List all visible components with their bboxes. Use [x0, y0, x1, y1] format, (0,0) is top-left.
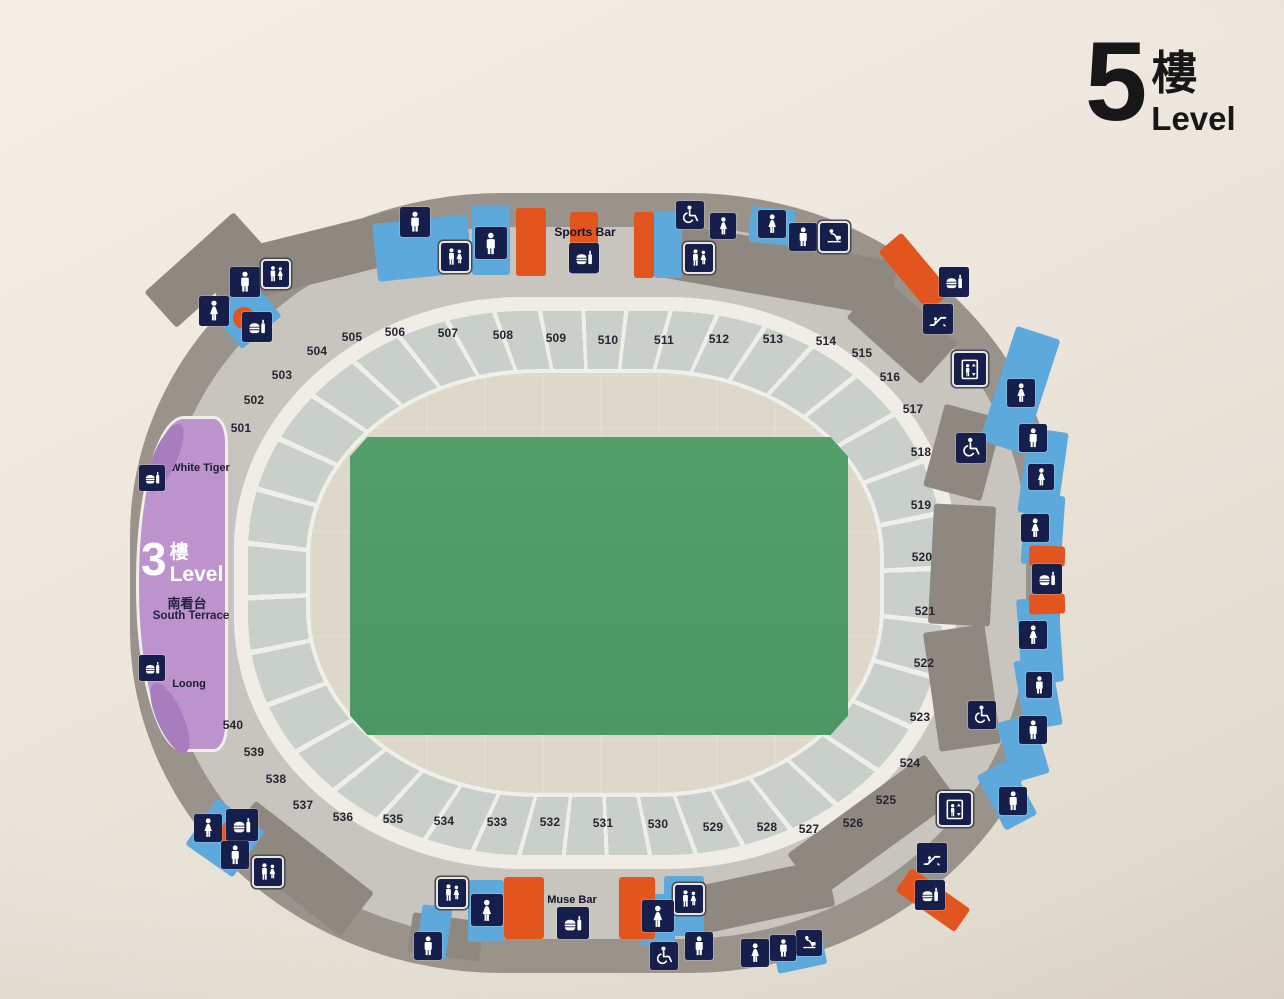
- wheelchair-access-icon: [956, 433, 986, 463]
- terrace-level-number: 3: [141, 539, 167, 585]
- orange-zone-patch: [504, 877, 544, 939]
- mens-restroom-icon: [685, 932, 713, 960]
- food-drink-icon: [557, 907, 589, 939]
- family-restroom-icon: [675, 885, 703, 913]
- level-floor-suffix: 樓: [1151, 50, 1235, 96]
- section-label-520: 520: [912, 550, 933, 564]
- womens-restroom-icon: [710, 213, 736, 239]
- section-label-501: 501: [231, 421, 252, 435]
- elevator-icon: [954, 353, 986, 385]
- mens-restroom-icon: [230, 267, 260, 297]
- stadium-level-map: 3 樓 Level 南看台 South Terrace White TigerL…: [0, 0, 1284, 999]
- section-label-508: 508: [493, 328, 514, 342]
- section-label-510: 510: [598, 333, 619, 347]
- food-drink-icon: [139, 655, 165, 681]
- food-drink-icon: [226, 809, 258, 841]
- section-label-523: 523: [910, 710, 931, 724]
- section-label-534: 534: [434, 814, 455, 828]
- section-label-535: 535: [383, 812, 404, 826]
- mens-restroom-icon: [221, 841, 249, 869]
- level-word: Level: [1151, 102, 1235, 135]
- orange-zone-patch: [634, 212, 654, 278]
- womens-restroom-icon: [642, 900, 674, 932]
- section-label-538: 538: [266, 772, 287, 786]
- section-label-515: 515: [852, 346, 873, 360]
- section-label-532: 532: [540, 815, 561, 829]
- mens-restroom-icon: [1019, 424, 1047, 452]
- section-label-525: 525: [876, 793, 897, 807]
- mens-restroom-icon: [400, 207, 430, 237]
- section-label-503: 503: [272, 368, 293, 382]
- baby-care-icon: [820, 223, 848, 251]
- section-label-539: 539: [244, 745, 265, 759]
- food-drink-icon: [1032, 564, 1062, 594]
- section-label-521: 521: [915, 604, 936, 618]
- section-label-514: 514: [816, 334, 837, 348]
- family-restroom-icon: [254, 858, 282, 886]
- wheelchair-access-icon: [676, 201, 704, 229]
- baby-care-icon: [796, 930, 822, 956]
- orange-zone-patch: [516, 208, 546, 276]
- womens-restroom-icon: [1019, 621, 1047, 649]
- section-label-533: 533: [487, 815, 508, 829]
- womens-restroom-icon: [471, 894, 503, 926]
- section-label-506: 506: [385, 325, 406, 339]
- sports-bar-label: Sports Bar: [554, 225, 615, 239]
- section-label-529: 529: [703, 820, 724, 834]
- pitch-field: [350, 437, 848, 735]
- terrace-level-word: Level: [170, 564, 224, 585]
- mens-restroom-icon: [770, 935, 796, 961]
- section-label-537: 537: [293, 798, 314, 812]
- womens-restroom-icon: [1021, 514, 1049, 542]
- food-drink-icon: [939, 267, 969, 297]
- section-label-505: 505: [342, 330, 363, 344]
- mens-restroom-icon: [999, 787, 1027, 815]
- section-label-524: 524: [900, 756, 921, 770]
- womens-restroom-icon: [741, 939, 769, 967]
- food-drink-icon: [915, 880, 945, 910]
- orange-zone-patch: [1029, 593, 1066, 614]
- section-label-531: 531: [593, 816, 614, 830]
- mens-restroom-icon: [475, 227, 507, 259]
- section-label-528: 528: [757, 820, 778, 834]
- mens-restroom-icon: [789, 223, 817, 251]
- mens-restroom-icon: [1019, 716, 1047, 744]
- escalator-icon: [917, 843, 947, 873]
- section-label-530: 530: [648, 817, 669, 831]
- womens-restroom-icon: [199, 296, 229, 326]
- section-label-511: 511: [654, 333, 674, 347]
- family-restroom-icon: [438, 879, 466, 907]
- section-label-507: 507: [438, 326, 459, 340]
- wheelchair-access-icon: [968, 701, 996, 729]
- food-drink-icon: [242, 312, 272, 342]
- section-label-527: 527: [799, 822, 820, 836]
- section-label-536: 536: [333, 810, 354, 824]
- terrace-floor-suffix: 樓: [170, 543, 224, 562]
- terrace-name-en: South Terrace: [153, 610, 229, 622]
- section-label-516: 516: [880, 370, 901, 384]
- family-restroom-icon: [441, 243, 469, 271]
- food-drink-icon: [139, 465, 165, 491]
- muse-bar-label: Muse Bar: [547, 894, 597, 906]
- section-label-509: 509: [546, 331, 567, 345]
- section-label-519: 519: [911, 498, 932, 512]
- section-label-526: 526: [843, 816, 864, 830]
- taupe-zone-patch: [928, 503, 996, 626]
- section-label-540: 540: [223, 718, 244, 732]
- escalator-icon: [923, 304, 953, 334]
- white-tiger-venue-label: White Tiger: [170, 462, 230, 474]
- elevator-icon: [939, 793, 971, 825]
- loong-venue-label: Loong: [172, 678, 206, 690]
- family-restroom-icon: [263, 261, 289, 287]
- section-label-518: 518: [911, 445, 932, 459]
- section-label-502: 502: [244, 393, 265, 407]
- page-level-title: 5 樓 Level: [1085, 34, 1236, 135]
- womens-restroom-icon: [194, 814, 222, 842]
- wheelchair-access-icon: [650, 942, 678, 970]
- family-restroom-icon: [685, 244, 713, 272]
- womens-restroom-icon: [1028, 464, 1054, 490]
- section-label-512: 512: [709, 332, 730, 346]
- section-label-517: 517: [903, 402, 924, 416]
- section-label-504: 504: [307, 344, 328, 358]
- womens-restroom-icon: [1007, 379, 1035, 407]
- mens-restroom-icon: [1026, 672, 1052, 698]
- mens-restroom-icon: [414, 932, 442, 960]
- terrace-level-title: 3 樓 Level: [141, 539, 223, 585]
- section-label-522: 522: [914, 656, 935, 670]
- section-label-513: 513: [763, 332, 784, 346]
- womens-restroom-icon: [758, 210, 786, 238]
- level-number: 5: [1085, 34, 1144, 135]
- food-drink-icon: [569, 243, 599, 273]
